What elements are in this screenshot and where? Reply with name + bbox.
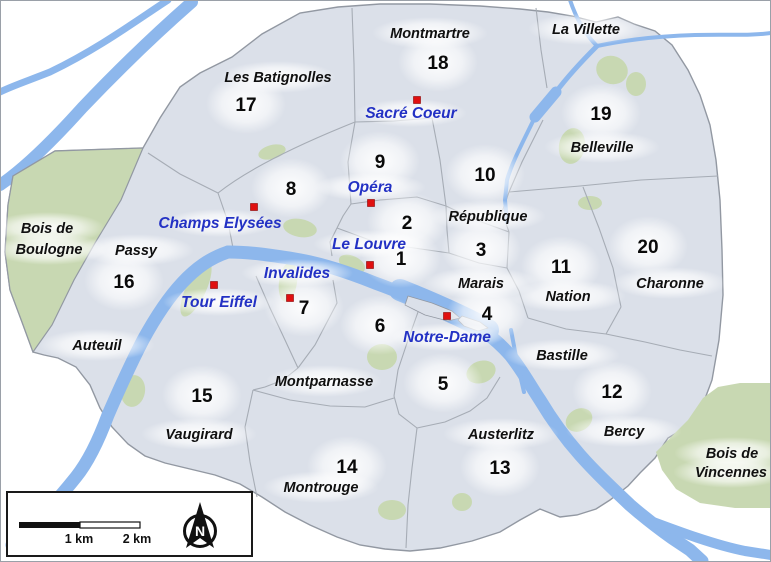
landmark-label-le-louvre: Le Louvre: [332, 236, 406, 253]
pere-lachaise: [578, 196, 602, 210]
place-label-boulogne: Boulogne: [16, 242, 83, 258]
place-label-passy: Passy: [115, 243, 158, 259]
place-label-vincennes: Vincennes: [695, 465, 767, 481]
district-number-14: 14: [336, 457, 358, 478]
district-number-11: 11: [551, 257, 572, 278]
scale-label-1km: 1 km: [65, 532, 94, 546]
place-label-montrouge: Montrouge: [284, 480, 359, 496]
place-label-republique: République: [449, 209, 528, 225]
scale-label-2km: 2 km: [123, 532, 152, 546]
district-number-13: 13: [489, 458, 510, 479]
place-label-bois-de: Bois de: [21, 221, 73, 237]
place-label-montmartre: Montmartre: [390, 26, 470, 42]
district-number-18: 18: [427, 53, 448, 74]
landmark-marker-champs-elysees: [251, 204, 258, 211]
landmark-marker-notre-dame: [444, 313, 451, 320]
landmark-marker-invalides: [287, 295, 294, 302]
place-label-auteuil: Auteuil: [71, 338, 122, 354]
district-number-12: 12: [601, 382, 622, 403]
place-label-bois-de: Bois de: [706, 446, 758, 462]
landmark-marker-sacre-coeur: [414, 97, 421, 104]
parc-montsouris: [378, 500, 406, 520]
landmark-label-sacre-coeur: Sacré Coeur: [365, 105, 457, 122]
paris-map-screenshot: MontmartreLa VilletteLes BatignollesBell…: [0, 0, 771, 562]
district-number-3: 3: [476, 240, 487, 261]
district-number-15: 15: [191, 386, 213, 407]
district-number-17: 17: [235, 95, 256, 116]
district-number-10: 10: [474, 165, 495, 186]
map-legend-box: 1 km 2 km N: [7, 492, 252, 556]
landmark-label-invalides: Invalides: [264, 265, 331, 282]
paris-arrondissements-map: MontmartreLa VilletteLes BatignollesBell…: [0, 0, 771, 562]
park-13th: [452, 493, 472, 511]
district-number-6: 6: [375, 316, 386, 337]
landmark-label-opera: Opéra: [348, 179, 393, 196]
landmark-label-champs-elysees: Champs Elysées: [158, 215, 282, 232]
place-label-les-batignolles: Les Batignolles: [224, 70, 331, 86]
landmark-marker-tour-eiffel: [211, 282, 218, 289]
landmark-label-tour-eiffel: Tour Eiffel: [181, 294, 257, 311]
district-number-2: 2: [402, 213, 413, 234]
scale-bar-white-segment: [80, 522, 140, 528]
place-label-bastille: Bastille: [536, 348, 588, 364]
place-label-montparnasse: Montparnasse: [275, 374, 373, 390]
landmark-marker-opera: [368, 200, 375, 207]
scale-bar-black-segment: [19, 522, 80, 528]
place-label-bercy: Bercy: [604, 424, 645, 440]
district-number-9: 9: [375, 152, 386, 173]
place-label-charonne: Charonne: [636, 276, 704, 292]
district-number-8: 8: [286, 179, 297, 200]
place-label-marais: Marais: [458, 276, 504, 292]
place-label-la-villette: La Villette: [552, 22, 620, 38]
district-number-20: 20: [637, 237, 658, 258]
landmark-marker-le-louvre: [367, 262, 374, 269]
district-number-7: 7: [299, 298, 310, 319]
landmark-label-notre-dame: Notre-Dame: [403, 329, 491, 346]
district-number-5: 5: [438, 374, 449, 395]
place-label-belleville: Belleville: [571, 140, 634, 156]
place-label-nation: Nation: [545, 289, 590, 305]
place-label-austerlitz: Austerlitz: [467, 427, 535, 443]
district-number-19: 19: [590, 104, 611, 125]
compass-north-letter: N: [195, 523, 205, 539]
place-label-vaugirard: Vaugirard: [165, 427, 233, 443]
district-number-16: 16: [113, 272, 134, 293]
district-number-4: 4: [482, 304, 493, 325]
